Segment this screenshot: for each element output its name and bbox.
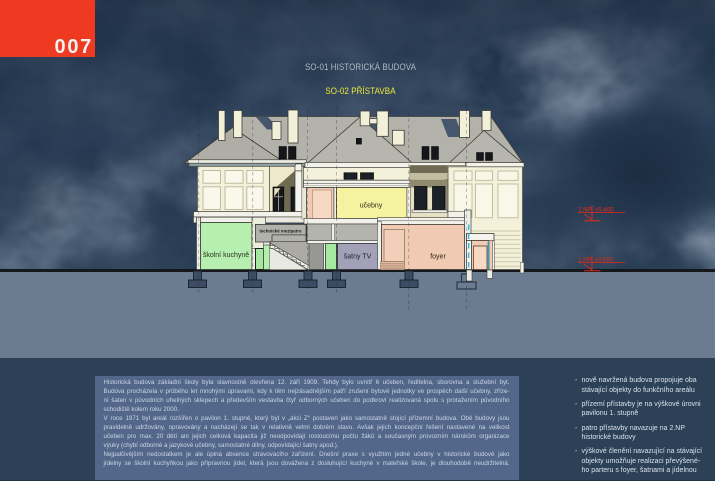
svg-text:školní kuchyně: školní kuchyně [203,252,249,259]
svg-text:foyer: foyer [430,254,446,261]
svg-text:technické mezipatro: technické mezipatro [259,229,302,234]
svg-text:šatny TV: šatny TV [344,254,372,261]
svg-text:učebny: učebny [360,203,383,210]
